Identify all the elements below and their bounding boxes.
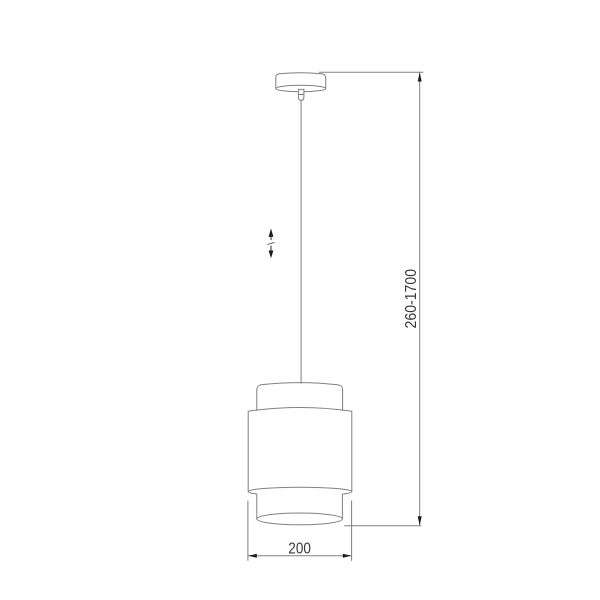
svg-text:200: 200: [288, 541, 311, 558]
svg-text:260-1700: 260-1700: [403, 269, 420, 329]
